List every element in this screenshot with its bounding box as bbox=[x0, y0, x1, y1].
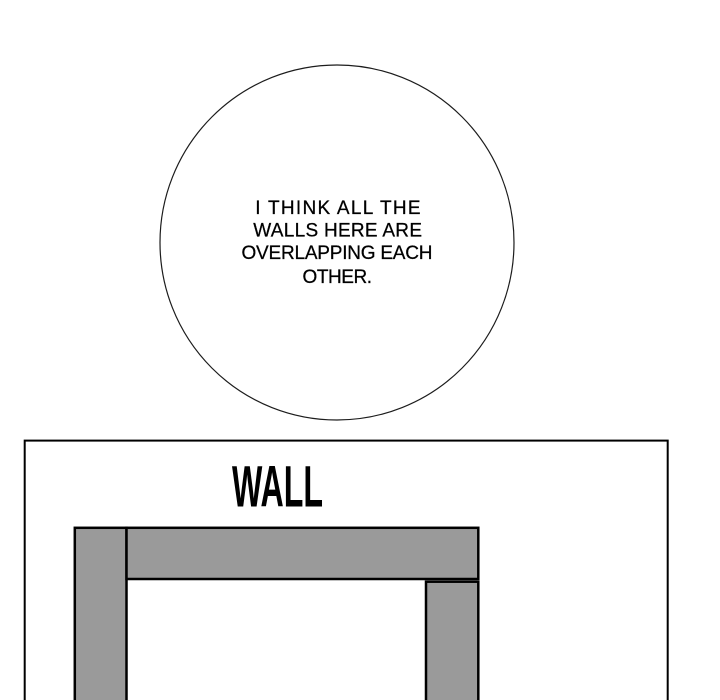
svg-text:OTHER.: OTHER. bbox=[303, 267, 373, 288]
svg-text:WALLS HERE ARE: WALLS HERE ARE bbox=[253, 220, 422, 241]
svg-text:OVERLAPPING EACH: OVERLAPPING EACH bbox=[242, 243, 433, 264]
svg-text:I THINK ALL THE: I THINK ALL THE bbox=[255, 198, 420, 219]
svg-text:WALL: WALL bbox=[232, 455, 323, 520]
